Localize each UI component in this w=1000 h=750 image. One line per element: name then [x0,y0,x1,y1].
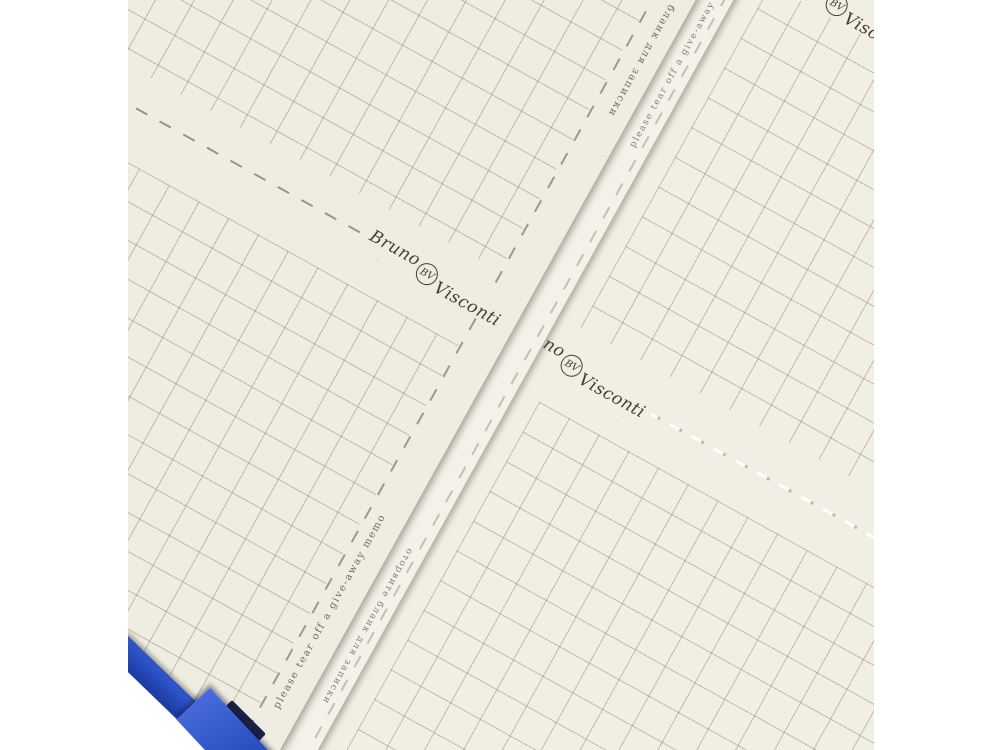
product-photo-notebook: { "brand": { "name_first": "Bruno", "nam… [0,0,1000,750]
brand-word-visconti: Visconti [575,370,649,423]
photo-frame: Bruno BV Visconti ····· ····· Bruno BV V… [128,0,874,750]
brand-subtext: ····· [362,251,385,267]
